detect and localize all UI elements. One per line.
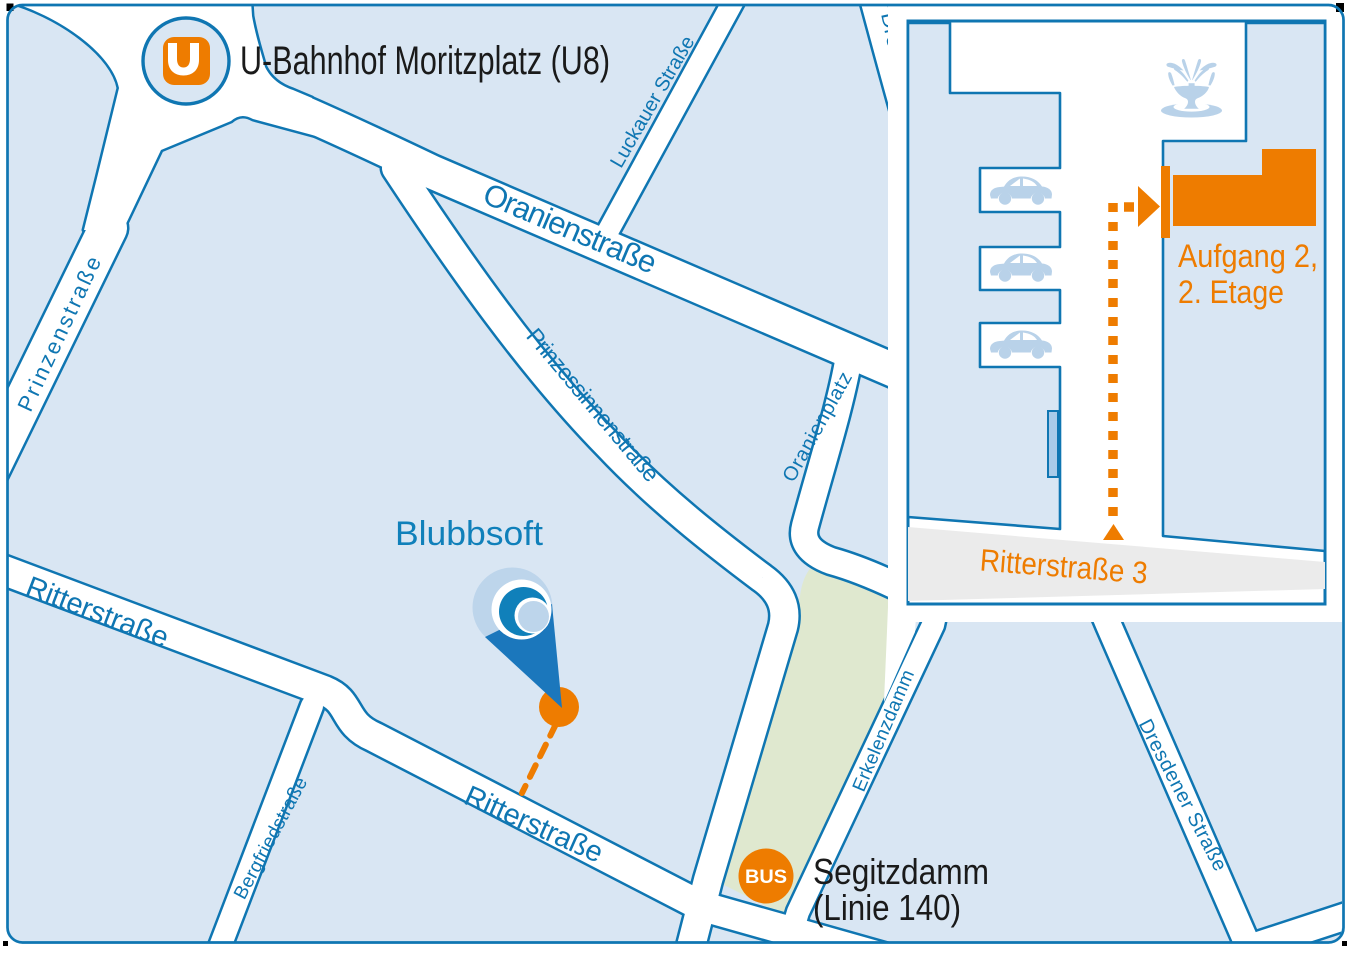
- svg-text:Aufgang 2,: Aufgang 2,: [1178, 238, 1318, 274]
- svg-text:2. Etage: 2. Etage: [1178, 274, 1284, 310]
- svg-text:Segitzdamm: Segitzdamm: [813, 851, 989, 892]
- svg-text:U-Bahnhof Moritzplatz (U8): U-Bahnhof Moritzplatz (U8): [240, 39, 610, 83]
- svg-text:(Linie 140): (Linie 140): [813, 887, 961, 928]
- svg-text:Blubbsoft: Blubbsoft: [395, 515, 544, 553]
- svg-text:BUS: BUS: [745, 867, 787, 888]
